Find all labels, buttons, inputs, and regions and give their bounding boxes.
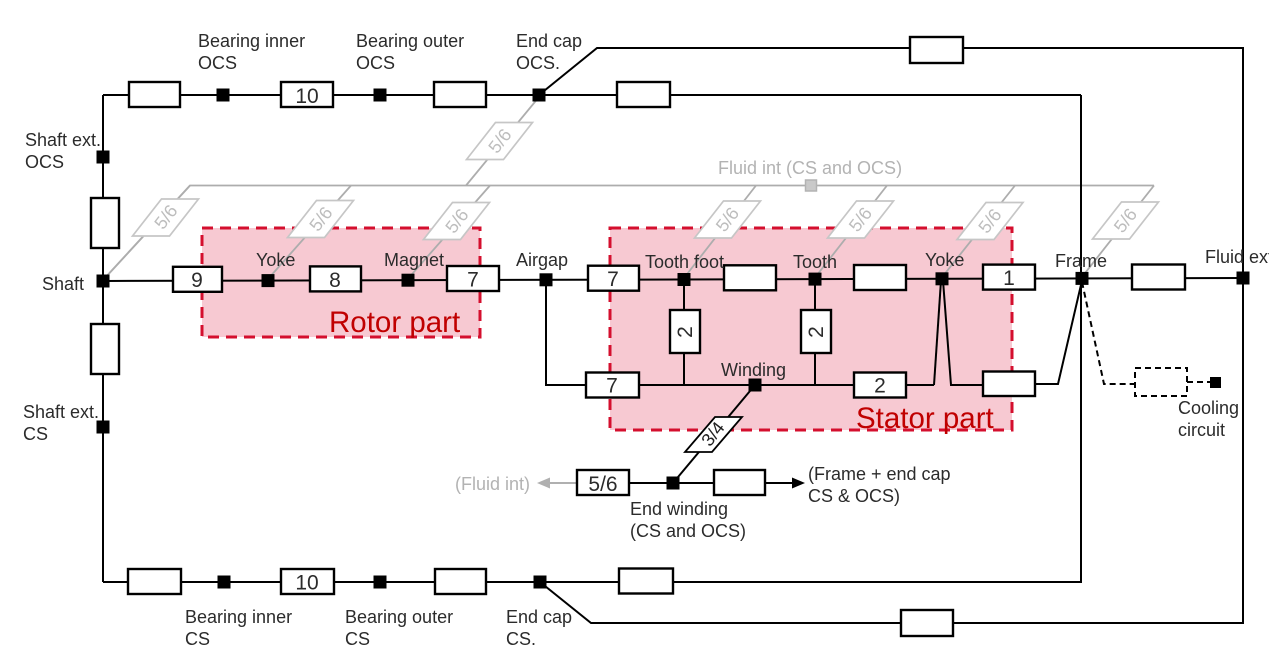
svg-text:Shaft ext.: Shaft ext.: [25, 130, 101, 150]
svg-text:OCS: OCS: [198, 53, 237, 73]
svg-text:End winding: End winding: [630, 499, 728, 519]
svg-text:7: 7: [467, 268, 479, 291]
svg-text:OCS.: OCS.: [516, 53, 560, 73]
svg-text:2: 2: [805, 326, 828, 338]
svg-text:Winding: Winding: [721, 360, 786, 380]
svg-text:1: 1: [1003, 267, 1015, 290]
svg-text:Fluid int (CS and OCS): Fluid int (CS and OCS): [718, 158, 902, 178]
svg-text:Bearing outer: Bearing outer: [345, 607, 453, 627]
svg-text:2: 2: [874, 375, 886, 398]
svg-text:End cap: End cap: [506, 607, 572, 627]
svg-text:5/6: 5/6: [588, 473, 617, 496]
svg-text:CS: CS: [23, 424, 48, 444]
svg-text:End cap: End cap: [516, 31, 582, 51]
svg-text:CS: CS: [185, 629, 210, 649]
svg-text:circuit: circuit: [1178, 420, 1225, 440]
svg-text:7: 7: [607, 268, 619, 291]
svg-text:Rotor part: Rotor part: [329, 306, 460, 339]
svg-text:10: 10: [295, 85, 318, 108]
svg-text:Shaft ext.: Shaft ext.: [23, 402, 99, 422]
svg-text:9: 9: [191, 269, 203, 292]
svg-text:OCS: OCS: [25, 152, 64, 172]
svg-text:8: 8: [329, 269, 341, 292]
svg-text:10: 10: [295, 572, 318, 595]
svg-text:OCS: OCS: [356, 53, 395, 73]
svg-text:(CS and OCS): (CS and OCS): [630, 521, 746, 541]
svg-text:7: 7: [606, 375, 618, 398]
svg-text:Tooth foot: Tooth foot: [645, 252, 724, 272]
svg-text:Fluid ext: Fluid ext: [1205, 247, 1269, 267]
svg-text:Bearing outer: Bearing outer: [356, 31, 464, 51]
svg-text:2: 2: [674, 326, 697, 338]
svg-text:Cooling: Cooling: [1178, 398, 1239, 418]
svg-text:Yoke: Yoke: [925, 250, 964, 270]
svg-text:Bearing inner: Bearing inner: [185, 607, 292, 627]
svg-text:(Fluid int): (Fluid int): [455, 474, 530, 494]
svg-text:Magnet: Magnet: [384, 250, 444, 270]
svg-text:Airgap: Airgap: [516, 250, 568, 270]
svg-text:Tooth: Tooth: [793, 252, 837, 272]
svg-text:Stator part: Stator part: [856, 402, 994, 435]
svg-text:CS.: CS.: [506, 629, 536, 649]
svg-text:CS: CS: [345, 629, 370, 649]
svg-text:CS & OCS): CS & OCS): [808, 486, 900, 506]
svg-text:Bearing inner: Bearing inner: [198, 31, 305, 51]
svg-text:(Frame + end cap: (Frame + end cap: [808, 464, 951, 484]
svg-text:Frame: Frame: [1055, 251, 1107, 271]
svg-text:Yoke: Yoke: [256, 250, 295, 270]
svg-text:Shaft: Shaft: [42, 274, 84, 294]
